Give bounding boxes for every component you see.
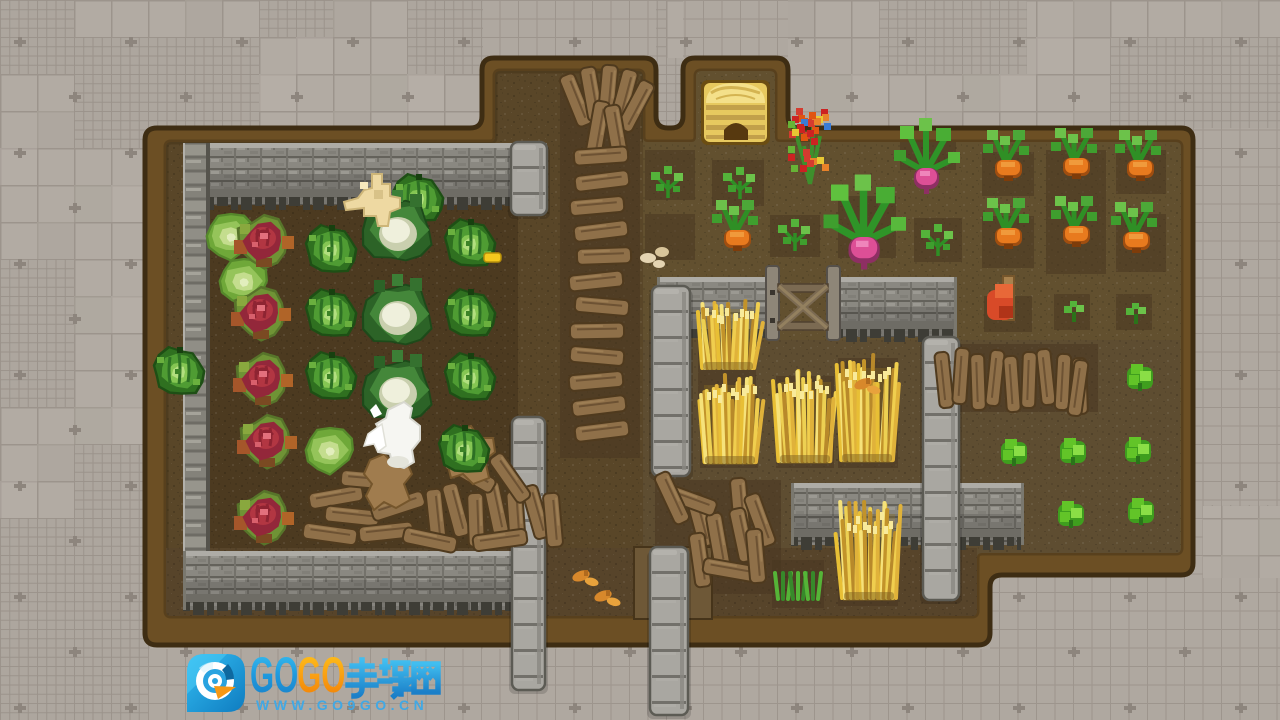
svg-text:WWW.GO9GO.CN: WWW.GO9GO.CN (256, 697, 428, 713)
svg-text:GO: GO (297, 646, 345, 702)
svg-text:GO: GO (250, 646, 298, 702)
